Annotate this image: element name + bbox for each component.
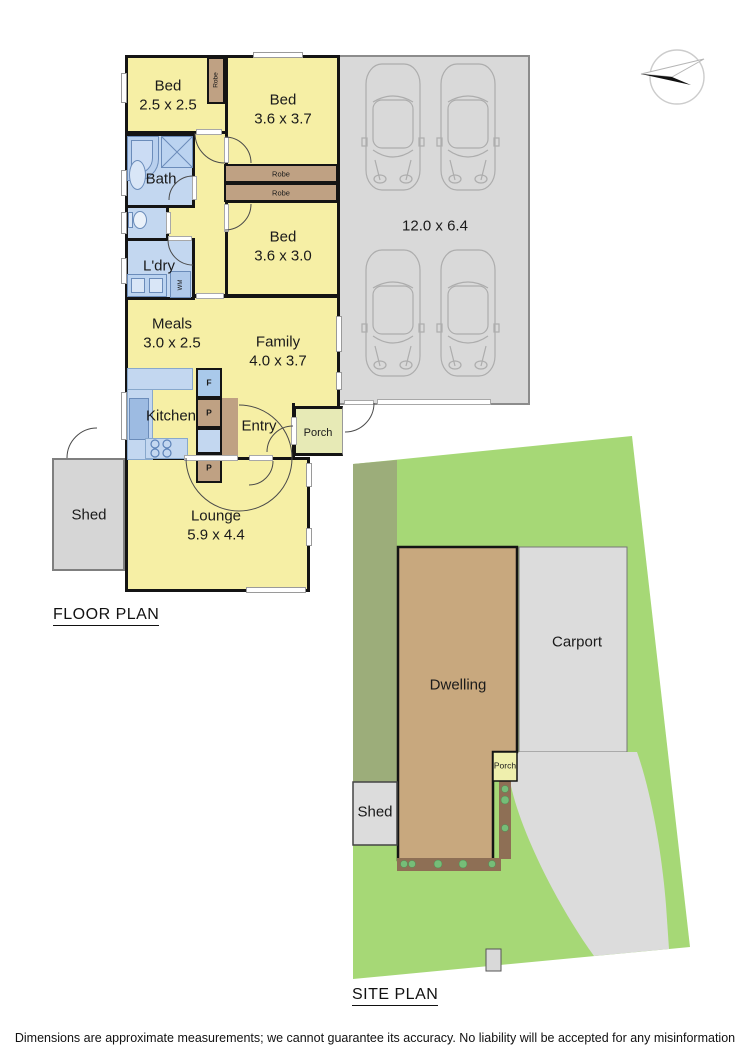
label-family: Family 4.0 x 3.7	[249, 333, 307, 371]
north-arrow-icon	[641, 50, 704, 104]
window	[121, 212, 127, 234]
door-opening	[291, 417, 297, 445]
window	[121, 170, 127, 196]
label-kitchen: Kitchen	[146, 408, 196, 427]
site-garden-bed	[499, 781, 511, 859]
door-opening	[196, 129, 222, 135]
door-opening	[249, 455, 273, 461]
site-plan-title: SITE PLAN	[352, 986, 438, 1006]
label-meals: Meals 3.0 x 2.5	[143, 315, 201, 353]
label-washing-machine: WM	[178, 280, 184, 291]
window	[121, 258, 127, 284]
door-opening	[224, 204, 229, 232]
door-opening	[192, 176, 197, 200]
laundry-sink	[149, 278, 163, 293]
label-bed2: Bed 3.6 x 3.7	[254, 91, 312, 129]
site-lot	[353, 436, 690, 979]
label-site-dwelling: Dwelling	[430, 677, 487, 696]
window	[306, 528, 312, 546]
label-site-shed: Shed	[357, 804, 392, 823]
door-opening	[224, 137, 229, 163]
floor-plan-title: FLOOR PLAN	[53, 606, 159, 626]
label-pantry2: P	[206, 463, 212, 474]
site-driveway	[511, 752, 669, 956]
cupboard	[196, 428, 222, 454]
label-porch: Porch	[304, 427, 333, 441]
label-laundry: L'dry	[143, 258, 175, 277]
site-crossover	[486, 949, 501, 971]
label-robe2: Robe	[272, 169, 290, 178]
label-entry: Entry	[241, 418, 276, 437]
window	[253, 52, 303, 58]
hall-cabinet	[222, 398, 238, 460]
laundry-sink	[131, 278, 145, 293]
label-bed1: Bed 2.5 x 2.5	[139, 77, 197, 115]
cooktop	[145, 438, 188, 459]
door-opening	[166, 212, 171, 234]
site-garden-bed	[397, 858, 501, 871]
shower	[161, 136, 193, 168]
site-plants	[401, 786, 510, 869]
floorplan-page: Bed 2.5 x 2.5 Robe Bed 3.6 x 3.7 Bath Ro…	[0, 0, 750, 1060]
label-garage-dims: 12.0 x 6.4	[402, 218, 468, 237]
kitchen-bench	[127, 368, 193, 390]
disclaimer-text: Dimensions are approximate measurements;…	[0, 1031, 750, 1045]
label-shed: Shed	[71, 507, 106, 526]
label-site-porch: Porch	[494, 761, 516, 772]
site-verge-strip	[353, 460, 397, 782]
window	[306, 463, 312, 487]
label-robe3: Robe	[272, 188, 290, 197]
window	[121, 392, 127, 440]
door-opening	[196, 293, 224, 299]
door-opening	[344, 400, 374, 405]
door-opening	[184, 455, 238, 461]
label-bed3: Bed 3.6 x 3.0	[254, 228, 312, 266]
vanity-basin	[129, 160, 146, 190]
garage-door-opening	[377, 399, 491, 405]
site-dwelling	[398, 547, 517, 860]
window	[121, 73, 127, 103]
window	[336, 316, 342, 352]
label-bath: Bath	[146, 171, 177, 190]
window	[246, 587, 306, 593]
toilet	[133, 211, 147, 229]
window	[336, 372, 342, 390]
label-site-carport: Carport	[552, 634, 602, 653]
label-fridge: F	[206, 378, 211, 389]
door-opening	[168, 236, 192, 241]
label-pantry1: P	[206, 408, 212, 419]
label-robe1: Robe	[213, 72, 220, 88]
label-lounge: Lounge 5.9 x 4.4	[187, 507, 245, 545]
